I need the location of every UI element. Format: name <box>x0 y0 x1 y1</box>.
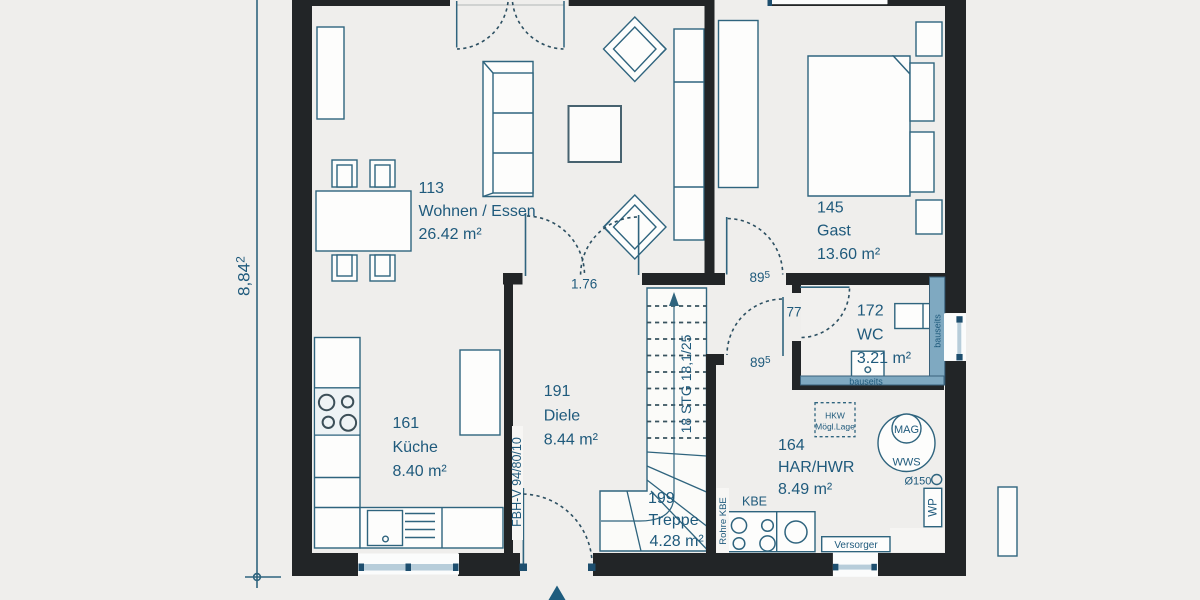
svg-text:4.28 m²: 4.28 m² <box>650 533 705 550</box>
svg-text:FBH-V 94/80/10: FBH-V 94/80/10 <box>510 437 524 527</box>
svg-text:3.21 m²: 3.21 m² <box>857 350 912 367</box>
svg-text:Diele: Diele <box>544 408 581 425</box>
svg-text:WP: WP <box>928 498 940 517</box>
svg-text:Gast: Gast <box>817 223 851 240</box>
svg-text:26.42 m²: 26.42 m² <box>419 226 483 243</box>
svg-text:8.44 m²: 8.44 m² <box>544 432 599 449</box>
svg-text:Rohre KBE: Rohre KBE <box>718 497 729 545</box>
svg-text:bauseits: bauseits <box>933 314 943 348</box>
svg-text:MAG: MAG <box>894 424 919 436</box>
svg-text:8.40 m²: 8.40 m² <box>393 463 448 480</box>
svg-text:164: 164 <box>778 437 805 454</box>
svg-text:8.49 m²: 8.49 m² <box>778 481 833 498</box>
svg-text:77: 77 <box>787 305 802 320</box>
svg-text:13.60 m²: 13.60 m² <box>817 246 881 263</box>
svg-text:161: 161 <box>393 415 420 432</box>
svg-text:WWS: WWS <box>892 457 920 469</box>
svg-text:Ø150: Ø150 <box>905 476 932 488</box>
svg-text:Küche: Küche <box>393 439 438 456</box>
svg-text:bauseits: bauseits <box>849 377 883 387</box>
svg-text:113: 113 <box>419 180 445 197</box>
svg-text:HAR/HWR: HAR/HWR <box>778 459 854 476</box>
svg-text:Mögl.Lage: Mögl.Lage <box>815 422 855 432</box>
svg-text:Wohnen / Essen: Wohnen / Essen <box>419 203 536 220</box>
svg-text:145: 145 <box>817 200 844 217</box>
svg-text:191: 191 <box>544 383 571 400</box>
svg-text:18 STG 18,1/25: 18 STG 18,1/25 <box>678 334 694 433</box>
svg-text:Versorger: Versorger <box>834 540 878 551</box>
svg-text:WC: WC <box>857 326 884 343</box>
svg-text:1.76: 1.76 <box>571 277 597 292</box>
svg-text:Treppe: Treppe <box>649 512 699 529</box>
svg-text:HKW: HKW <box>825 411 845 421</box>
svg-text:KBE: KBE <box>742 495 767 509</box>
svg-text:199: 199 <box>648 490 675 507</box>
svg-text:172: 172 <box>857 303 884 320</box>
